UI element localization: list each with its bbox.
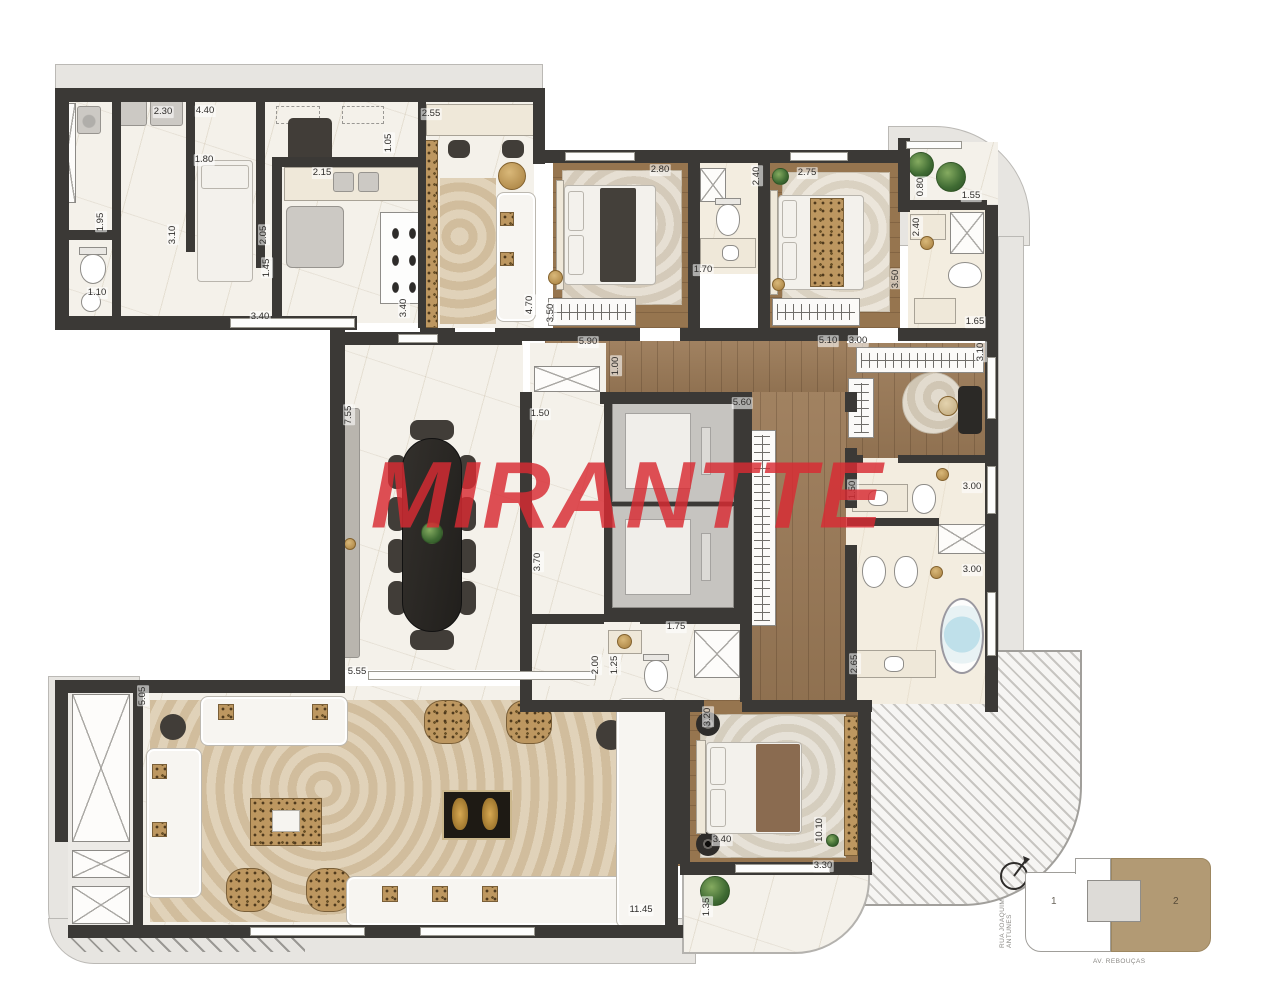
keyplan-core <box>1087 880 1141 922</box>
dimension-label: 5.55 <box>347 666 368 678</box>
dimension-label: 2.65 <box>849 654 861 675</box>
dimension-label: 1.80 <box>194 154 215 166</box>
dimension-label: 5.90 <box>578 336 599 348</box>
dimension-label: 10.10 <box>814 817 826 843</box>
dimension-label: 3.40 <box>250 311 271 323</box>
dimension-label: 3.20 <box>702 707 714 728</box>
dimension-label: 3.40 <box>398 298 410 319</box>
keyplan-unit1-label: 1 <box>1051 896 1057 907</box>
dimension-label: 3.30 <box>813 860 834 872</box>
keyplan: 1 2 RUA JOAQUIM ANTUNES AV. REBOUÇAS <box>995 850 1280 996</box>
dimension-label: 1.95 <box>95 212 107 233</box>
dimension-label: 3.50 <box>890 269 902 290</box>
dimension-label: 1.10 <box>87 287 108 299</box>
dimension-label: 5.05 <box>137 686 149 707</box>
keyplan-unit1-step <box>1075 858 1111 874</box>
dimension-label: 2.75 <box>797 167 818 179</box>
dimension-label: 2.30 <box>153 106 174 118</box>
dimension-label: 5.10 <box>818 335 839 347</box>
dimension-label: 2.40 <box>751 166 763 187</box>
dimension-label: 4.40 <box>195 105 216 117</box>
dimension-label: 2.55 <box>421 108 442 120</box>
dimension-label: 3.00 <box>962 564 983 576</box>
dimension-label: 7.55 <box>343 405 355 426</box>
dimension-label: 2.00 <box>590 655 602 676</box>
dimension-label: 1.25 <box>609 655 621 676</box>
dimension-label: 1.45 <box>261 258 273 279</box>
dimension-label: 2.80 <box>650 164 671 176</box>
dimension-label: 3.70 <box>532 552 544 573</box>
keyplan-unit2-label: 2 <box>1173 896 1179 907</box>
dimension-label: 2.40 <box>911 217 923 238</box>
dimension-label: 11.45 <box>628 904 653 916</box>
dimension-label: 2.05 <box>258 225 270 246</box>
dimension-label: 3.10 <box>167 225 179 246</box>
dimension-label: 1.75 <box>666 621 687 633</box>
dimension-label: 1.65 <box>965 316 986 328</box>
floorplan-canvas: 2.304.401.802.151.052.551.953.102.051.45… <box>0 0 1280 998</box>
keyplan-street-left: RUA JOAQUIM ANTUNES <box>999 864 1013 948</box>
dimension-label: 3.10 <box>975 342 987 363</box>
dimension-label: 3.40 <box>712 834 733 846</box>
dimension-label: 3.00 <box>848 335 869 347</box>
dimension-label: 1.05 <box>383 133 395 154</box>
dimension-label: 4.70 <box>524 295 536 316</box>
dimension-label: 5.60 <box>732 397 753 409</box>
dimension-label: 1.35 <box>701 897 713 918</box>
dimension-label: 1.00 <box>610 356 622 377</box>
dimension-label: 1.70 <box>693 264 714 276</box>
dimension-label: 3.50 <box>545 303 557 324</box>
watermark: MIRANTTE <box>371 442 886 551</box>
dimension-label: 1.55 <box>961 190 982 202</box>
dimension-label: 2.15 <box>312 167 333 179</box>
dimension-label: 1.50 <box>530 408 551 420</box>
dimension-label: 3.00 <box>962 481 983 493</box>
dimension-label: 0.80 <box>915 177 927 198</box>
keyplan-street-bottom: AV. REBOUÇAS <box>1093 958 1145 965</box>
